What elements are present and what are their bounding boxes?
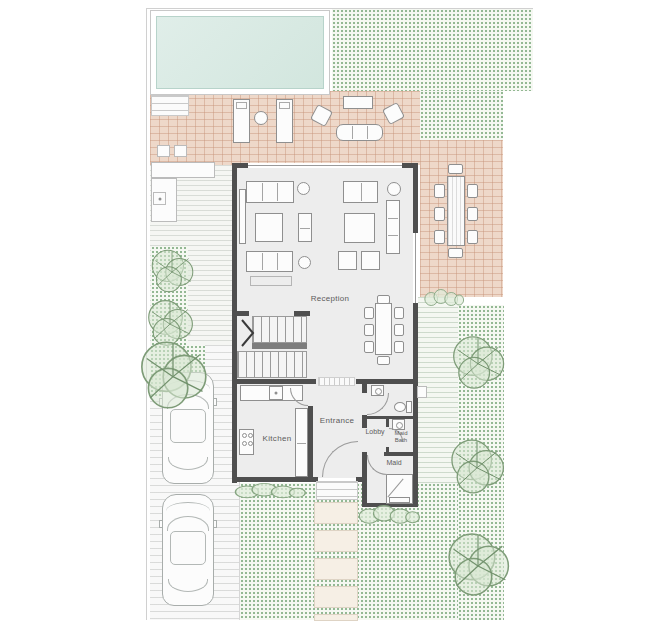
groundcover-top-right (332, 9, 533, 91)
tree (446, 315, 510, 410)
sun-lounger (276, 99, 293, 143)
label-maid-bath-1: Maid (394, 430, 407, 436)
label-lobby: Lobby (365, 428, 384, 435)
stair-rail (252, 343, 307, 349)
kitchen-sink (269, 386, 283, 400)
stair-wall-stub (237, 311, 249, 316)
stove (239, 429, 254, 455)
stepping-stone (314, 502, 358, 524)
toilet-bowl (394, 402, 406, 412)
sideboard (239, 189, 246, 244)
wall-niche (417, 386, 427, 398)
sofa (343, 181, 378, 203)
outdoor-sofa (336, 124, 383, 141)
chair (467, 230, 478, 244)
chair (434, 184, 445, 198)
tree (440, 512, 516, 617)
pool-steps (151, 95, 189, 116)
pool-water (156, 16, 324, 89)
tree (132, 330, 214, 420)
outdoor-dining-table (447, 176, 465, 246)
car (162, 494, 214, 606)
label-maid: Maid (386, 459, 401, 466)
dining-table (375, 303, 392, 355)
swimming-pool (150, 10, 330, 95)
tree (444, 418, 510, 515)
coffee-table (344, 213, 375, 243)
coffee-table-outdoor (343, 96, 373, 109)
entrance-steps (316, 481, 358, 500)
side-table (297, 182, 310, 195)
chair (364, 341, 374, 353)
wall (413, 163, 418, 233)
sun-lounger (233, 99, 250, 143)
wall (362, 383, 367, 393)
label-entrance: Entrance (320, 416, 354, 425)
nesting-table (298, 213, 312, 242)
side-table-outdoor (254, 111, 268, 125)
wall (232, 379, 316, 384)
label-reception: Reception (311, 294, 350, 303)
bed-pillow (389, 497, 410, 503)
chair (377, 356, 390, 365)
terrace-step-stone (157, 145, 170, 157)
stair-direction-arrow (240, 318, 256, 348)
wall (386, 419, 389, 427)
stepping-stone (314, 586, 358, 608)
planter-bench-top (151, 162, 215, 178)
chair (434, 230, 445, 244)
armchair (361, 251, 380, 270)
groundcover-top-right-lower (420, 91, 503, 140)
terrace-door-window (413, 233, 418, 303)
garden-fixture (153, 192, 166, 205)
sofa (246, 181, 294, 203)
chair (394, 324, 404, 336)
window (248, 163, 402, 168)
terrace-step-stone (174, 145, 187, 157)
stair-flight-upper (252, 316, 307, 343)
wall (413, 303, 418, 507)
label-kitchen: Kitchen (263, 434, 292, 443)
sofa (246, 251, 293, 272)
chair (448, 248, 463, 258)
side-table (387, 182, 401, 196)
chair (364, 307, 374, 319)
armchair (338, 251, 357, 270)
wall (232, 163, 237, 483)
toilet-tank (406, 401, 412, 413)
side-table (298, 256, 311, 269)
chair (434, 207, 445, 221)
stepping-stone (314, 530, 358, 552)
rug (250, 276, 292, 286)
chair (377, 295, 390, 304)
stepping-stone (314, 614, 358, 621)
kitchen-tall-unit (295, 408, 308, 477)
entrance-threshold (318, 377, 355, 386)
chair (364, 324, 374, 336)
stepping-stone (314, 558, 358, 580)
bush-row (424, 288, 464, 308)
chair (467, 184, 478, 198)
chair (467, 207, 478, 221)
coffee-table (255, 213, 283, 242)
stair-flight-lower (237, 351, 307, 378)
bush-row (234, 482, 306, 500)
floor-plan: Reception Kitchen Entrance Lobby Maid Ba… (0, 0, 661, 621)
wall (308, 406, 313, 477)
wall (384, 452, 418, 456)
label-maid-bath-2: Bath (395, 437, 407, 443)
chair (448, 164, 463, 174)
chair (394, 307, 404, 319)
chair (394, 341, 404, 353)
tv-cabinet (386, 200, 400, 254)
bush-row (358, 504, 420, 526)
